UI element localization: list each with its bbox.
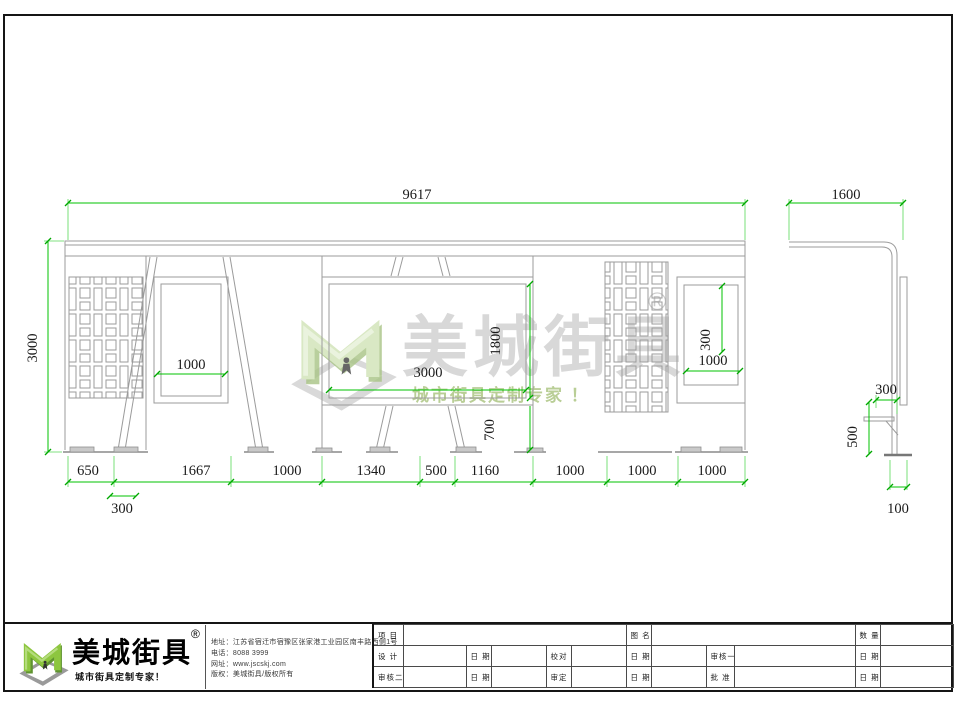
dim-offset-left: 300 [111, 501, 133, 517]
front-elevation-linework [63, 241, 748, 452]
dim-base: 100 [887, 501, 909, 517]
dim-bottom-3: 1000 [273, 463, 302, 479]
dim-seat-height: 500 [845, 426, 861, 448]
dim-bottom-7: 1000 [556, 463, 585, 479]
dim-screen-height: 1800 [488, 327, 504, 356]
dim-panel1-width: 1000 [177, 357, 206, 373]
dim-bottom-9: 1000 [698, 463, 727, 479]
dim-bottom-2: 1667 [182, 463, 211, 479]
dim-panel2-height: 300 [698, 329, 714, 351]
cad-drawing-canvas: 9617 1600 3000 1000 3000 1800 700 300 10… [0, 0, 960, 704]
dim-screen-width: 3000 [414, 365, 443, 381]
cad-sheet: { "colors": { "dimension_green": "#00c30… [0, 0, 960, 704]
side-view-linework [789, 242, 912, 455]
dim-total-width: 9617 [403, 187, 432, 203]
dim-panel2-width: 1000 [699, 353, 728, 369]
dim-seat-depth: 300 [875, 382, 897, 398]
dim-height: 3000 [25, 334, 41, 363]
dim-bottom-4: 1340 [357, 463, 386, 479]
dim-bottom-8: 1000 [628, 463, 657, 479]
dim-under-screen: 700 [482, 419, 498, 441]
dim-side-depth: 1600 [832, 187, 861, 203]
dim-bottom-6: 1160 [471, 463, 499, 479]
dimension-lines [44, 199, 910, 499]
dim-bottom-1: 650 [77, 463, 99, 479]
dimension-labels: 9617 1600 3000 1000 3000 1800 700 300 10… [25, 187, 909, 517]
dim-bottom-5: 500 [425, 463, 447, 479]
